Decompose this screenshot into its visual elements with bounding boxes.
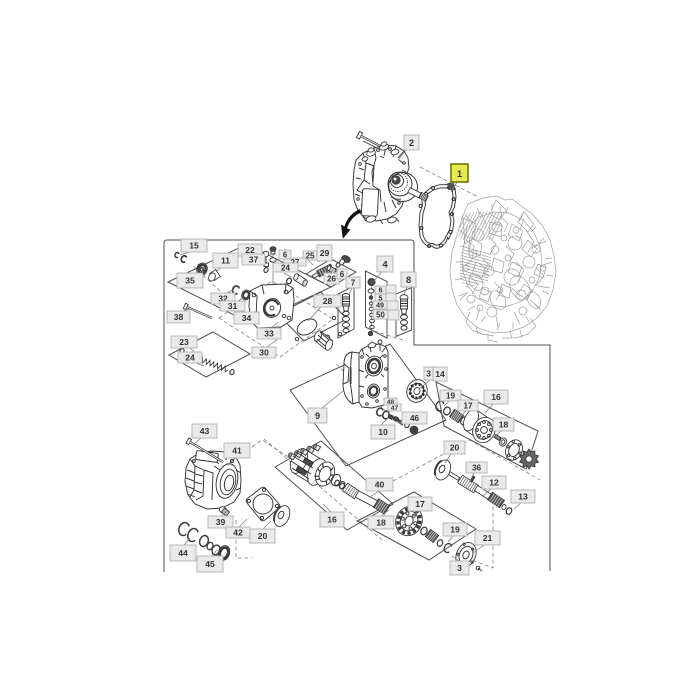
svg-text:3: 3 <box>426 369 431 379</box>
svg-text:47: 47 <box>391 405 399 412</box>
svg-text:2: 2 <box>409 138 414 148</box>
svg-text:15: 15 <box>189 241 199 251</box>
svg-text:43: 43 <box>200 426 210 436</box>
svg-text:20: 20 <box>258 531 268 541</box>
svg-text:18: 18 <box>499 420 509 430</box>
svg-text:40: 40 <box>375 480 385 490</box>
svg-text:26: 26 <box>327 275 337 284</box>
svg-text:34: 34 <box>242 313 252 323</box>
svg-text:10: 10 <box>378 427 388 437</box>
svg-text:20: 20 <box>450 443 460 453</box>
svg-text:8: 8 <box>406 275 411 285</box>
svg-text:11: 11 <box>221 256 230 266</box>
svg-text:45: 45 <box>205 559 215 569</box>
svg-text:38: 38 <box>174 312 184 322</box>
svg-text:35: 35 <box>185 276 195 286</box>
svg-text:29: 29 <box>320 248 330 258</box>
svg-text:31: 31 <box>228 301 238 311</box>
svg-text:3: 3 <box>457 563 462 573</box>
svg-text:24: 24 <box>185 353 195 363</box>
svg-text:37: 37 <box>249 255 259 265</box>
svg-text:42: 42 <box>233 528 243 538</box>
svg-text:16: 16 <box>491 392 501 402</box>
svg-text:50: 50 <box>376 310 385 319</box>
svg-text:19: 19 <box>450 525 460 535</box>
svg-text:39: 39 <box>216 517 226 527</box>
svg-text:28: 28 <box>323 296 333 306</box>
svg-text:13: 13 <box>518 492 528 502</box>
svg-text:6: 6 <box>340 270 345 279</box>
svg-text:14: 14 <box>435 369 445 379</box>
svg-text:46: 46 <box>410 414 420 423</box>
svg-text:23: 23 <box>179 337 189 347</box>
svg-text:7: 7 <box>351 279 356 288</box>
svg-text:4: 4 <box>382 259 388 269</box>
svg-text:49: 49 <box>376 301 384 310</box>
svg-text:16: 16 <box>327 515 337 525</box>
svg-text:21: 21 <box>483 533 493 543</box>
svg-text:17: 17 <box>463 402 473 411</box>
svg-text:30: 30 <box>259 348 269 358</box>
svg-text:33: 33 <box>264 329 274 339</box>
svg-text:12: 12 <box>489 478 499 488</box>
svg-text:17: 17 <box>415 499 425 509</box>
svg-text:1: 1 <box>457 169 462 179</box>
svg-text:19: 19 <box>446 392 456 401</box>
svg-text:41: 41 <box>232 446 242 456</box>
svg-text:18: 18 <box>376 518 386 528</box>
svg-text:9: 9 <box>315 411 320 421</box>
svg-text:6: 6 <box>283 250 288 259</box>
svg-text:24: 24 <box>281 263 290 272</box>
svg-text:25: 25 <box>305 252 315 261</box>
svg-text:44: 44 <box>178 548 188 558</box>
svg-text:36: 36 <box>472 464 482 473</box>
